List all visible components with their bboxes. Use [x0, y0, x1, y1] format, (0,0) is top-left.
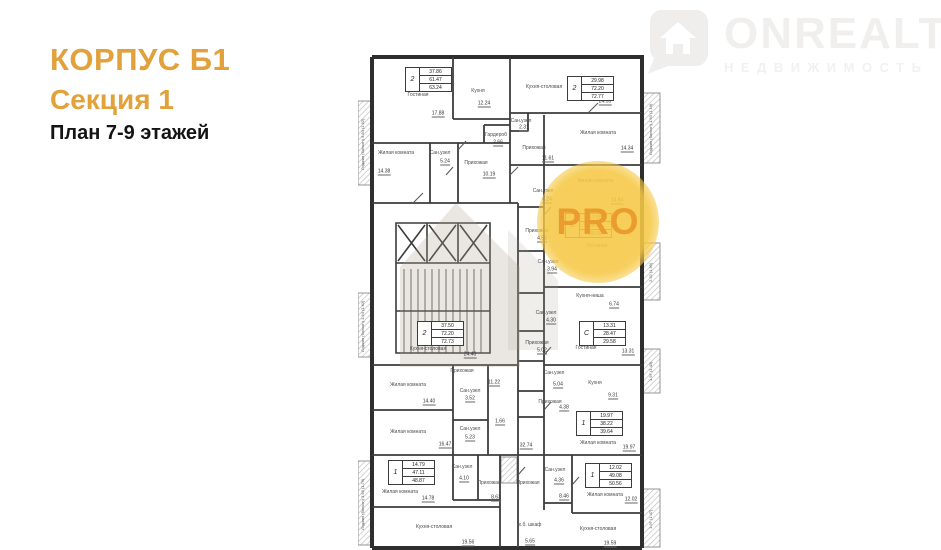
apartment-area-value: 19.97 — [591, 412, 622, 420]
room-area-value: 9.31 — [608, 393, 618, 400]
room-label: Сан.узел — [460, 426, 481, 432]
room-label: Кухня-ниша — [576, 293, 603, 299]
pro-watermark-text: PRO — [556, 201, 639, 243]
area-value: 1.66 — [495, 419, 505, 426]
room-label: Сан.узел — [545, 467, 566, 473]
apartment-area-value: 48.87 — [403, 477, 434, 484]
room-area-value: 19.56 — [462, 540, 475, 547]
apartment-areas: 14.7947.1148.87 — [403, 461, 434, 484]
room-area-value: 6.74 — [609, 302, 619, 309]
room-label: Гардероб — [485, 132, 507, 138]
room-label: Прихожая — [450, 368, 473, 374]
room-label: Кухня — [588, 380, 601, 386]
room-label: Жилая комната — [580, 130, 616, 136]
room-area-value: 5.23 — [465, 435, 475, 442]
apartment-area-value: 72.20 — [432, 330, 463, 338]
apartment-area-value: 49.08 — [600, 472, 631, 480]
room-area-value: 14.38 — [378, 169, 391, 176]
room-area-value: 11.61 — [542, 156, 554, 163]
room-label: Сан.узел — [544, 370, 565, 376]
apartment-room-count: 1 — [577, 412, 591, 435]
logo-name: ONREALT — [724, 12, 941, 56]
apartment-areas: 13.3128.4729.58 — [594, 322, 625, 345]
room-area-value: 3.94 — [547, 267, 557, 274]
apartment-spec-box: 237.8661.4763.24 — [405, 67, 452, 92]
apartment-area-value: 37.50 — [432, 322, 463, 330]
apartment-room-count: С — [580, 322, 594, 345]
room-area-value: 8.46 — [559, 494, 569, 501]
room-label: Сан.узел — [460, 388, 481, 394]
apartment-area-value: 38.22 — [591, 420, 622, 428]
apartment-spec-box: 237.5072.2072.73 — [417, 321, 464, 346]
room-area-value: 4.36 — [554, 478, 564, 485]
room-area-value: 24.40 — [464, 352, 477, 359]
room-area-value: 3.52 — [465, 396, 475, 403]
apartment-area-value: 28.47 — [594, 330, 625, 338]
room-area-value: 14.78 — [422, 496, 435, 503]
room-area-value: 4.38 — [559, 405, 569, 412]
balcony-label: 1.97 (1.47) — [648, 491, 653, 547]
room-area-value: 19.97 — [623, 445, 636, 452]
room-area-value: 19.59 — [604, 541, 617, 548]
balcony-label: 1.97 (1.43) — [648, 351, 653, 391]
logo-subtitle: НЕДВИЖИМОСТЬ — [724, 60, 928, 75]
balcony-label: Лоджия (балкон) 1.50 (1.16) — [648, 95, 653, 163]
apartment-area-value: 50.56 — [600, 480, 631, 487]
balcony-label: Лоджия (балкон) 1.94 (1.63) — [360, 295, 365, 357]
apartment-spec-box: 119.9738.2239.64 — [576, 411, 623, 436]
room-area-value: 5.65 — [525, 539, 535, 546]
apartment-area-value: 29.98 — [582, 77, 613, 85]
apartment-area-value: 37.86 — [420, 68, 451, 76]
page: { "header": { "building": "КОРПУС Б1", "… — [0, 0, 941, 550]
room-area-value: 4.10 — [459, 476, 469, 483]
apartment-area-value: 61.47 — [420, 76, 451, 84]
room-label: Прихожая — [516, 480, 539, 486]
apartment-areas: 37.5072.2072.73 — [432, 322, 463, 345]
room-label: Жилая комната — [580, 440, 616, 446]
apartment-room-count: 1 — [389, 461, 403, 484]
onrealt-logo: ONREALT НЕДВИЖИМОСТЬ — [646, 8, 941, 79]
pro-watermark: PRO — [537, 161, 659, 283]
section-title: Секция 1 — [50, 84, 230, 116]
apartment-room-count: 2 — [406, 68, 420, 91]
room-label: Жилая комната — [587, 492, 623, 498]
room-label: Жилая комната — [390, 429, 426, 435]
apartment-area-value: 47.11 — [403, 469, 434, 477]
apartment-areas: 12.0249.0850.56 — [600, 464, 631, 487]
room-label: Кухня — [471, 88, 484, 94]
apartment-area-value: 12.02 — [600, 464, 631, 472]
room-area-value: 16.47 — [439, 442, 452, 449]
room-label: Сан.узел — [452, 464, 473, 470]
apartment-room-count: 2 — [568, 77, 582, 100]
room-label: Жилая комната — [382, 489, 418, 495]
room-label: Сан.узел — [536, 310, 557, 316]
apartment-area-value: 13.31 — [594, 322, 625, 330]
room-area-value: 4.30 — [546, 318, 556, 325]
room-label: Кухня-столовая — [410, 346, 446, 352]
room-label: Жилая комната — [378, 150, 414, 156]
apartment-area-value: 14.79 — [403, 461, 434, 469]
apartment-areas: 19.9738.2239.64 — [591, 412, 622, 435]
room-area-value: 8.63 — [491, 495, 501, 502]
room-label: Прихожая — [477, 480, 500, 486]
room-label: Сан.узел — [511, 118, 532, 124]
room-label: Прихожая — [538, 399, 561, 405]
room-area-value: 13.31 — [622, 349, 635, 356]
plan-title: План 7-9 этажей — [50, 122, 230, 145]
balcony-label: Лоджия (балкон) 3.84 (1.92) — [360, 103, 365, 185]
room-area-value: 2.31 — [519, 125, 529, 132]
room-area-value: 5.04 — [553, 382, 563, 389]
logo-text: ONREALT НЕДВИЖИМОСТЬ — [724, 12, 941, 75]
title-block: КОРПУС Б1 Секция 1 План 7-9 этажей — [50, 42, 230, 145]
apartment-areas: 29.9872.2072.77 — [582, 77, 613, 100]
room-area-value: 12.24 — [478, 101, 491, 108]
area-value: 32.74 — [520, 443, 533, 450]
apartment-areas: 37.8661.4763.24 — [420, 68, 451, 91]
apartment-room-count: 2 — [418, 322, 432, 345]
apartment-area-value: 72.77 — [582, 93, 613, 100]
apartment-area-value: 63.24 — [420, 84, 451, 91]
apartment-area-value: 39.64 — [591, 428, 622, 435]
floor-plan: Гостиная17.88Кухня12.24Жилая комната14.3… — [358, 55, 662, 550]
room-label: Сан.узел — [430, 150, 451, 156]
balcony-label: Лоджия (балкон) 3.55 (1.76) — [360, 463, 365, 545]
apartment-area-value: 72.73 — [432, 338, 463, 345]
apartment-spec-box: С13.3128.4729.58 — [579, 321, 626, 346]
room-label: Прихожая — [522, 145, 545, 151]
apartment-spec-box: 229.9872.2072.77 — [567, 76, 614, 101]
room-area-value: 11.22 — [488, 380, 500, 387]
room-label: Гостиная — [408, 92, 429, 98]
apartment-spec-box: 112.0249.0850.56 — [585, 463, 632, 488]
room-area-value: 17.88 — [432, 111, 445, 118]
room-area-value: 5.24 — [440, 159, 450, 166]
room-label: Прихожая — [464, 160, 487, 166]
apartment-area-value: 72.20 — [582, 85, 613, 93]
room-area-value: 14.34 — [621, 146, 634, 153]
room-label: Кухня-столовая — [416, 524, 452, 530]
room-area-value: 10.19 — [483, 172, 496, 179]
room-label: Кухня-столовая — [526, 84, 562, 90]
room-area-value: 14.40 — [423, 399, 436, 406]
building-title: КОРПУС Б1 — [50, 42, 230, 78]
plan-labels: Гостиная17.88Кухня12.24Жилая комната14.3… — [358, 55, 662, 550]
room-label: Жилая комната — [390, 382, 426, 388]
room-label: Кухня-столовая — [580, 526, 616, 532]
room-area-value: 2.66 — [493, 140, 503, 147]
room-label: Прихожая — [525, 340, 548, 346]
room-label: х.б. шкаф — [519, 522, 542, 528]
room-area-value: 12.02 — [625, 497, 638, 504]
apartment-room-count: 1 — [586, 464, 600, 487]
apartment-spec-box: 114.7947.1148.87 — [388, 460, 435, 485]
apartment-area-value: 29.58 — [594, 338, 625, 345]
room-area-value: 5.02 — [537, 348, 547, 355]
